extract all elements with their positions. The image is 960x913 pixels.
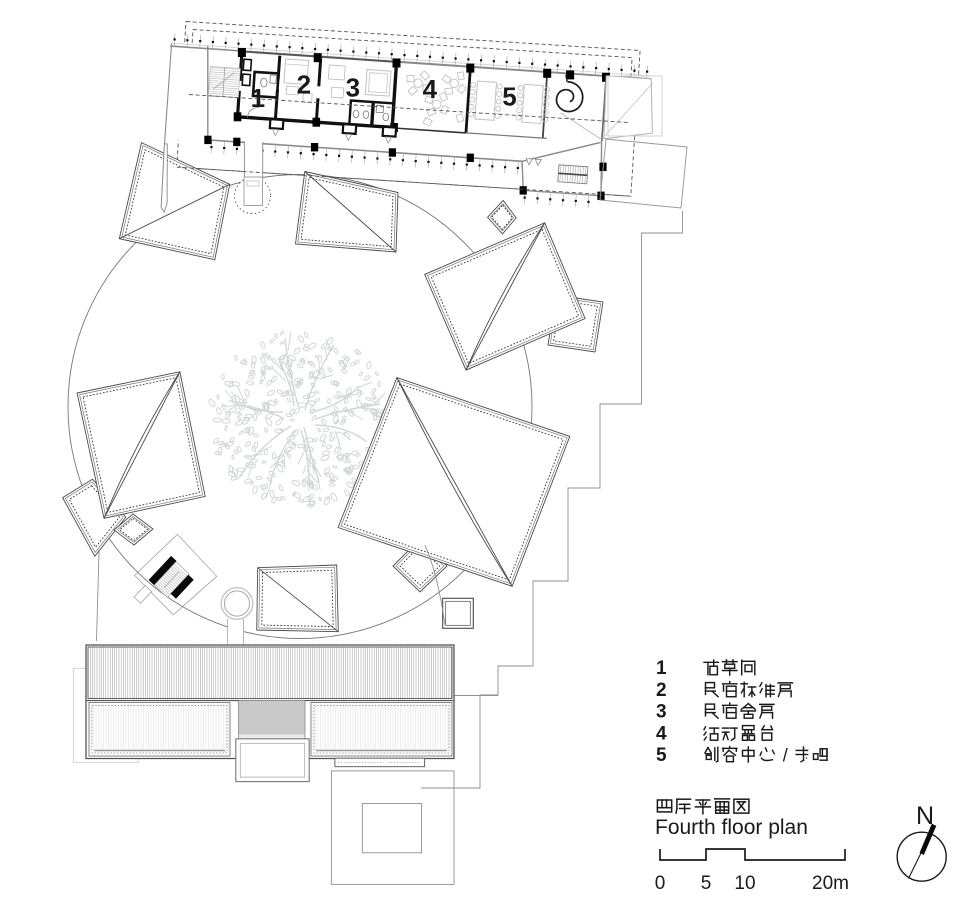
- svg-text:10: 10: [734, 873, 755, 894]
- svg-text:1: 1: [656, 658, 667, 679]
- svg-text:/: /: [783, 745, 788, 765]
- svg-text:20m: 20m: [812, 873, 849, 894]
- svg-text:4: 4: [656, 724, 667, 745]
- svg-text:1: 1: [251, 83, 265, 113]
- svg-text:5: 5: [502, 81, 516, 111]
- svg-text:5: 5: [656, 745, 667, 766]
- svg-text:2: 2: [656, 680, 667, 701]
- svg-text:4: 4: [423, 74, 438, 104]
- svg-text:0: 0: [655, 873, 666, 894]
- svg-text:2: 2: [297, 69, 311, 99]
- svg-text:3: 3: [656, 702, 667, 723]
- svg-text:N: N: [916, 802, 934, 830]
- svg-text:5: 5: [701, 873, 712, 894]
- svg-text:Fourth floor plan: Fourth floor plan: [655, 816, 808, 839]
- svg-text:3: 3: [346, 73, 360, 103]
